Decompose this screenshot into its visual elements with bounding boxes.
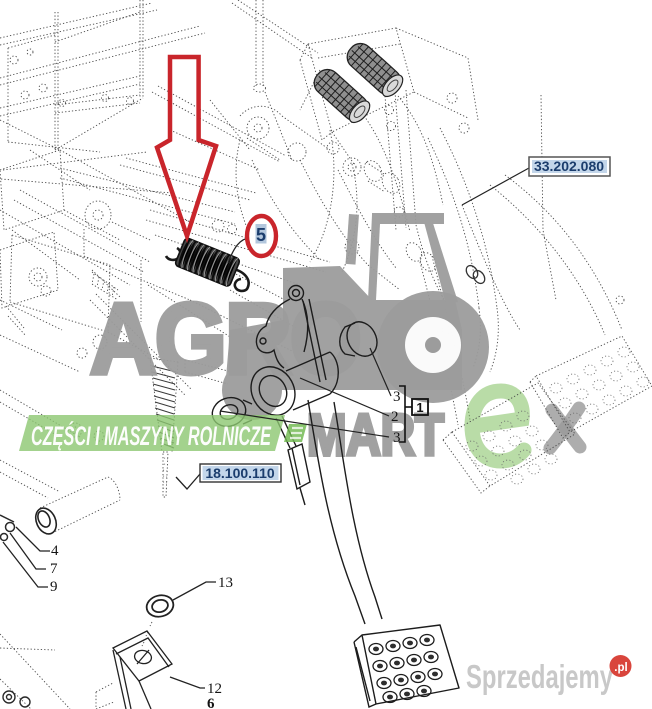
svg-text:3: 3 [393, 430, 401, 446]
svg-text:7: 7 [50, 561, 58, 577]
svg-text:2: 2 [391, 409, 399, 425]
svg-text:CZĘŚCI I MASZYNY ROLNICZE: CZĘŚCI I MASZYNY ROLNICZE [31, 420, 272, 451]
svg-text:.pl: .pl [614, 662, 627, 674]
svg-text:33.202.080: 33.202.080 [534, 158, 604, 174]
svg-text:6: 6 [207, 696, 215, 709]
svg-text:13: 13 [218, 575, 233, 591]
svg-text:Sprzedajemy: Sprzedajemy [466, 658, 613, 695]
svg-text:3: 3 [393, 389, 401, 405]
svg-text:5: 5 [256, 225, 266, 245]
svg-text:18.100.110: 18.100.110 [205, 465, 275, 481]
svg-text:9: 9 [50, 579, 58, 595]
svg-text:12: 12 [207, 681, 222, 697]
svg-text:1: 1 [416, 400, 423, 415]
svg-text:4: 4 [51, 543, 59, 559]
